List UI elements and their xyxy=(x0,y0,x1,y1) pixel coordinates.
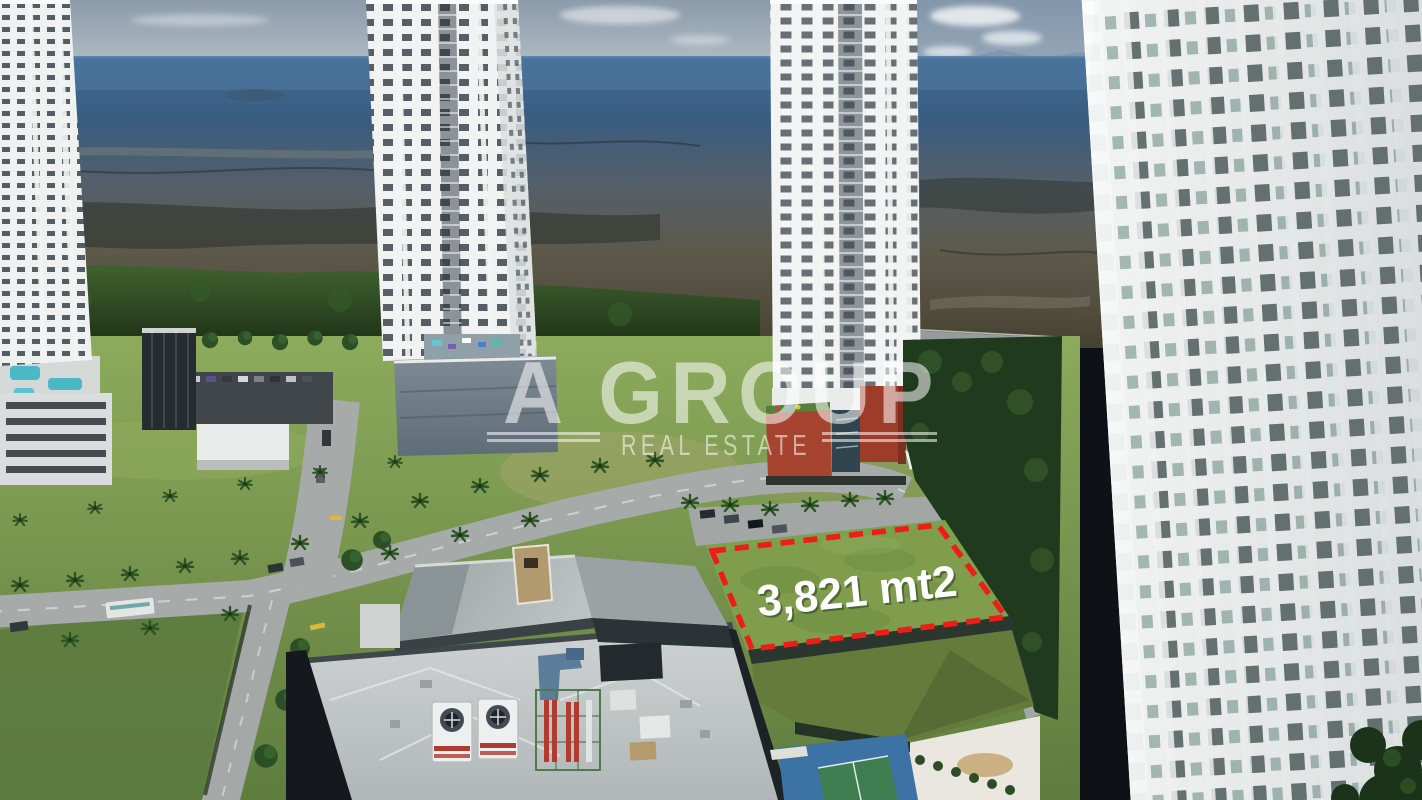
white-clubhouse xyxy=(197,424,289,470)
tower1-podium xyxy=(0,393,112,485)
tower-2 xyxy=(366,0,537,361)
glass-building xyxy=(142,328,196,430)
cooling-tower-1 xyxy=(432,702,472,762)
watermark-brand: A GROUP xyxy=(503,343,941,442)
tower-right xyxy=(1038,0,1422,800)
tower-3 xyxy=(770,0,921,397)
watermark-tagline: REAL ESTATE xyxy=(621,430,811,462)
cooling-tower-2 xyxy=(478,699,518,759)
road-vertical xyxy=(305,400,335,588)
aerial-photo: A GROUP REAL ESTATE 3,821 mt2 3,821 mt2 xyxy=(0,0,1422,800)
cupola xyxy=(513,545,552,604)
pipe-rack xyxy=(536,690,600,770)
